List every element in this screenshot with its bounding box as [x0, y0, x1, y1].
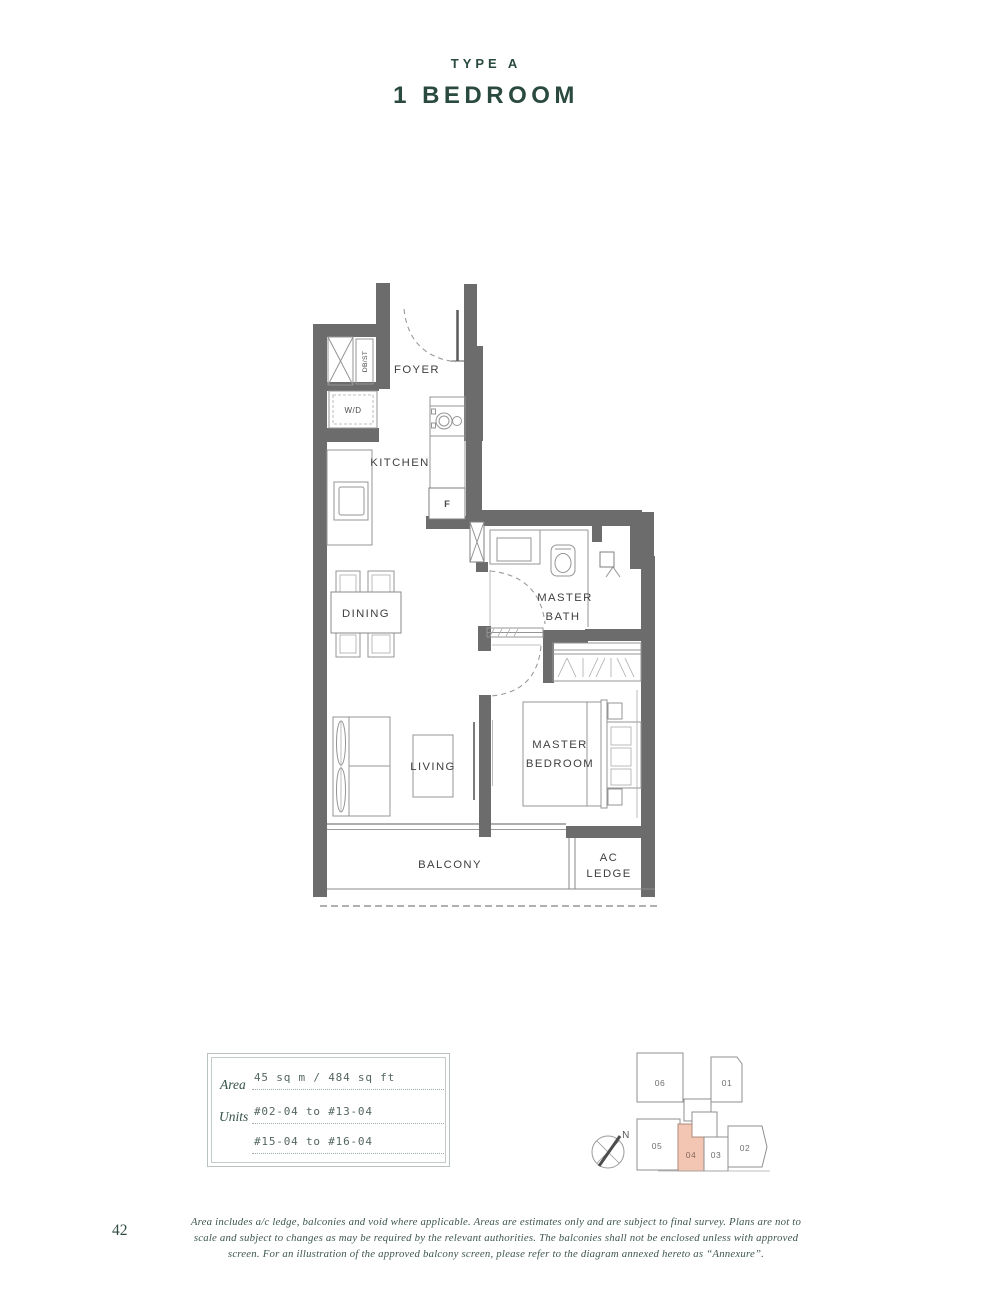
north-label: N	[622, 1130, 630, 1141]
wardrobe	[553, 643, 641, 681]
walls	[313, 283, 655, 897]
washer-dryer: W/D	[329, 391, 377, 428]
sofa	[333, 717, 390, 816]
room-label-balcony: BALCONY	[418, 859, 482, 871]
wall-segment	[566, 826, 643, 838]
toilet	[551, 545, 575, 576]
disclaimer-line: screen. For an illustration of the appro…	[191, 1246, 801, 1262]
disclaimer-line: scale and subject to changes as may be r…	[191, 1230, 801, 1246]
wall-segment	[476, 562, 488, 572]
key-plan-label-02: 02	[740, 1143, 750, 1153]
fridge-label: F	[444, 499, 450, 510]
wall-segment	[592, 526, 602, 542]
services-riser	[470, 522, 484, 562]
units-value-1: #02-04 to #13-04	[254, 1105, 373, 1118]
fridge: F	[429, 488, 465, 519]
kitchen-counter-left	[327, 450, 372, 545]
washer-dryer-label: W/D	[344, 406, 361, 415]
disclaimer-line: Area includes a/c ledge, balconies and v…	[191, 1214, 801, 1230]
wall-segment	[479, 695, 491, 837]
page-number: 42	[112, 1222, 128, 1240]
key-plan-label-06: 06	[655, 1078, 665, 1088]
area-label: Area	[220, 1077, 246, 1093]
wall-segment	[543, 641, 554, 683]
balcony-window	[327, 824, 566, 830]
room-label-foyer: FOYER	[394, 364, 440, 376]
page-title: 1 BEDROOM	[393, 82, 579, 110]
key-plan-label-03: 03	[711, 1150, 721, 1160]
room-label-master-bedroom-1: MASTER	[532, 739, 587, 751]
dresser	[607, 722, 641, 788]
disclaimer-text: Area includes a/c ledge, balconies and v…	[191, 1214, 801, 1262]
room-label-dining: DINING	[342, 608, 390, 620]
unit-info-box: Area 45 sq m / 484 sq ft Units #02-04 to…	[207, 1053, 450, 1167]
wall-segment	[464, 346, 483, 441]
key-plan-label-04: 04	[686, 1150, 696, 1160]
room-label-master-bath-2: BATH	[546, 611, 581, 623]
wall-segment	[376, 283, 390, 389]
units-value-2: #15-04 to #16-04	[254, 1135, 373, 1148]
ac-ledge-divider	[569, 838, 575, 889]
room-label-master-bedroom-2: BEDROOM	[526, 758, 594, 770]
dotted-rule	[252, 1123, 444, 1124]
wall-segment	[464, 284, 477, 348]
room-label-ac-ledge-2: LEDGE	[586, 868, 631, 880]
key-plan-label-05: 05	[652, 1141, 662, 1151]
dotted-rule	[252, 1089, 444, 1090]
cooktop	[430, 406, 465, 436]
master-bed	[523, 700, 607, 808]
entry-door	[404, 309, 464, 362]
page-header: TYPE A 1 BEDROOM	[393, 56, 579, 110]
shower	[588, 530, 620, 627]
wall-segment	[313, 324, 327, 897]
wall-segment	[472, 510, 642, 526]
compass: N	[592, 1130, 630, 1168]
unit-type-label: TYPE A	[393, 56, 579, 71]
foyer-closet	[328, 337, 353, 385]
nightstands	[608, 703, 622, 805]
room-label-ac-ledge-1: AC	[600, 852, 619, 864]
north-needle	[599, 1136, 620, 1166]
wall-segment	[327, 428, 379, 442]
room-label-kitchen: KITCHEN	[370, 457, 429, 469]
wall-segment	[478, 626, 491, 651]
bedroom-door-swing-arc	[491, 646, 541, 696]
wall-segment	[585, 629, 654, 641]
room-label-master-bath-1: MASTER	[537, 592, 592, 604]
room-label-living: LIVING	[410, 761, 455, 773]
dotted-rule	[252, 1153, 444, 1154]
building-footprint	[637, 1053, 770, 1171]
units-label: Units	[219, 1109, 248, 1125]
db-store-cabinet: DB/ST	[356, 339, 373, 384]
db-store-label: DB/ST	[362, 351, 369, 373]
area-value: 45 sq m / 484 sq ft	[254, 1071, 395, 1084]
brochure-page: { "page": { "type_label": "TYPE A", "tit…	[0, 0, 1000, 1304]
wall-segment	[641, 556, 655, 897]
door-swing-arc	[404, 309, 456, 362]
wall-segment	[466, 439, 482, 517]
bath-sliding-door	[487, 628, 543, 637]
key-plan: N 06 01 05 04 03 02	[578, 1038, 778, 1183]
wall-segment	[313, 324, 381, 337]
floor-plan: DB/ST W/D F	[300, 272, 668, 922]
key-plan-core	[692, 1112, 717, 1137]
key-plan-label-01: 01	[722, 1078, 732, 1088]
